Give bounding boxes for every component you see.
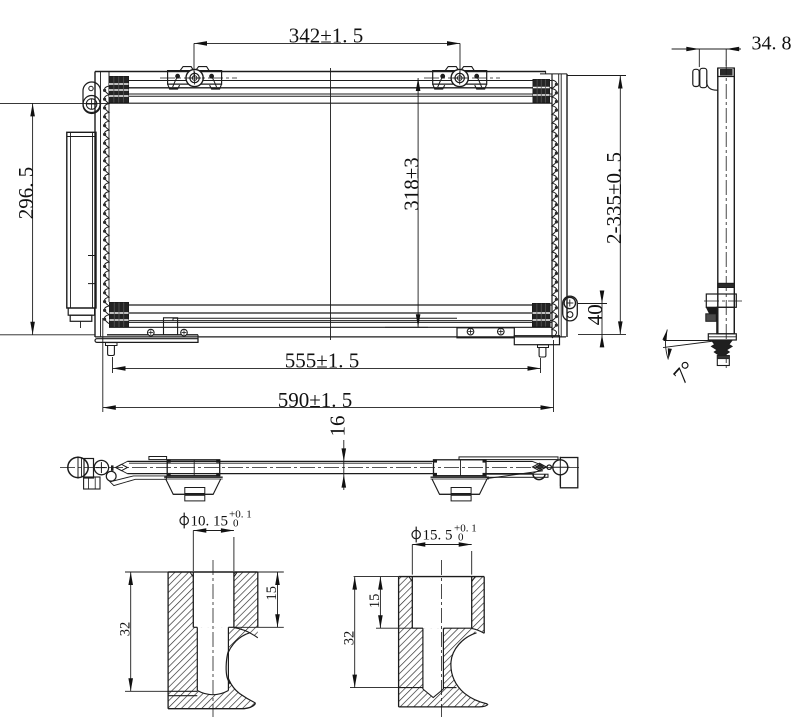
svg-text:10. 15: 10. 15 xyxy=(191,514,229,530)
svg-text:15. 5: 15. 5 xyxy=(423,528,453,544)
svg-text:0: 0 xyxy=(458,532,464,544)
svg-text:318±3: 318±3 xyxy=(400,157,424,211)
svg-text:32: 32 xyxy=(117,622,133,637)
svg-text:15: 15 xyxy=(367,594,383,609)
svg-text:590±1. 5: 590±1. 5 xyxy=(278,388,353,412)
svg-text:0: 0 xyxy=(233,518,239,530)
svg-text:342±1. 5: 342±1. 5 xyxy=(289,24,364,48)
svg-text:15: 15 xyxy=(264,586,280,601)
svg-text:32: 32 xyxy=(341,631,357,646)
svg-text:40: 40 xyxy=(583,304,607,325)
svg-text:34. 8: 34. 8 xyxy=(752,33,792,55)
svg-text:296. 5: 296. 5 xyxy=(14,167,38,220)
svg-text:555±1. 5: 555±1. 5 xyxy=(285,349,360,373)
svg-text:2-335±0. 5: 2-335±0. 5 xyxy=(602,152,626,244)
svg-text:16: 16 xyxy=(325,416,349,437)
